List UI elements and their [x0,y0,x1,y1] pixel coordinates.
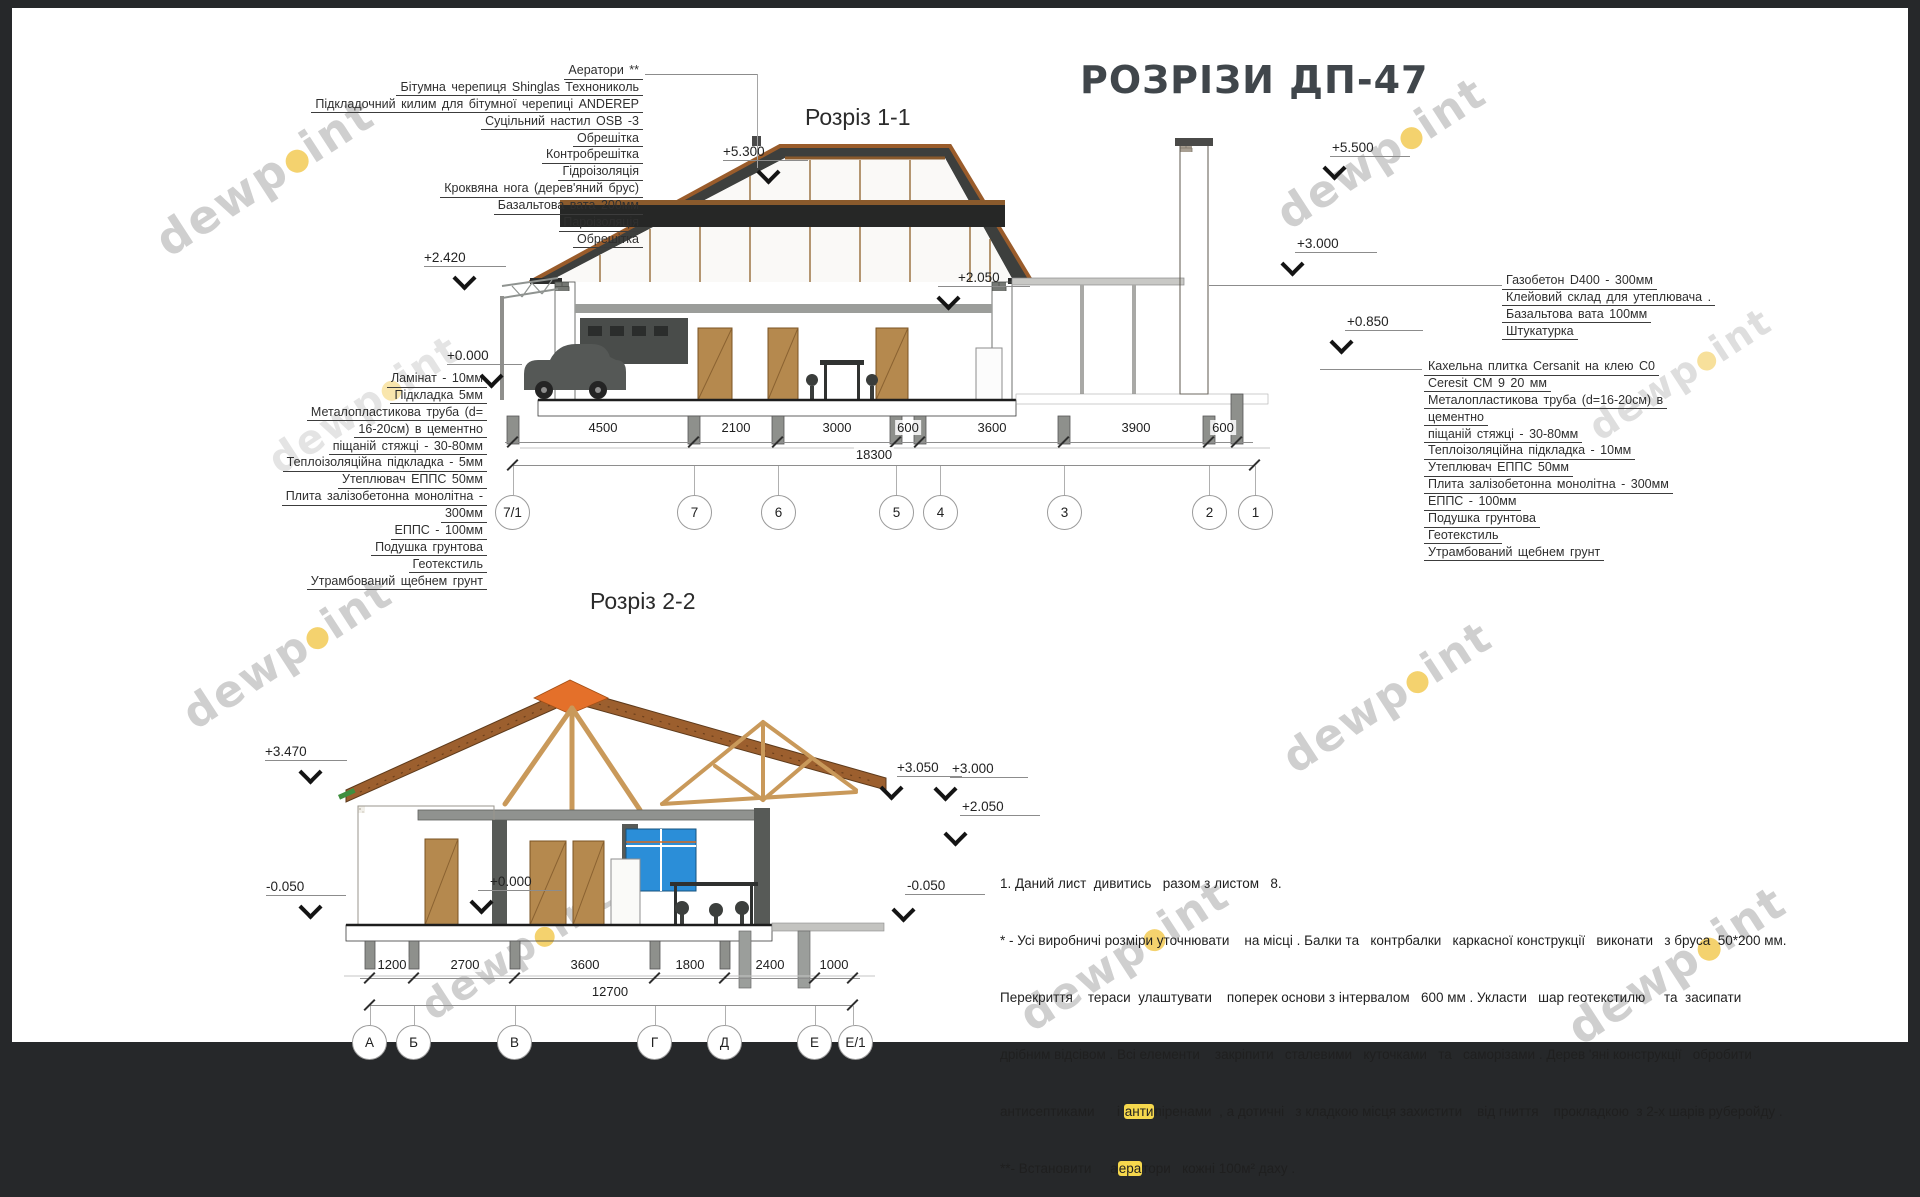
elevation-label: -0.050 [266,879,304,894]
callout-line: Плита залізобетонна монолітна - 300мм [1424,478,1673,494]
axis-leader [1209,466,1210,495]
dim-line [513,465,1255,466]
leader-line [1209,285,1502,286]
callout-line: піщаній стяжці - 30-80мм [329,440,487,456]
dim-value: 3600 [569,957,602,972]
notes-line: * - Усі виробничі розміри уточнювати на … [1000,931,1790,950]
axis-leader [370,1006,371,1025]
axis-bubble: В [497,1025,532,1060]
axis-leader [513,466,514,495]
elevation-label: +5.500 [1332,140,1374,155]
highlighted-text: ера [1118,1161,1143,1176]
axis-leader [725,1006,726,1025]
callout-line: Кахельна плитка Cersanit на клею C0 [1424,360,1659,376]
elevation-line [447,364,522,365]
floor-layer-callouts-left: Ламінат - 10мм Підкладка 5мм Металопласт… [282,372,487,592]
axis-bubble: 3 [1047,495,1082,530]
callout-line: Підкладочний килим для бітумної черепиці… [311,98,643,114]
dim-total: 12700 [590,984,630,999]
axis-bubble: 6 [761,495,796,530]
elevation-line [1295,252,1377,253]
dim-value: 2700 [449,957,482,972]
callout-line: Газобетон D400 - 300мм [1502,274,1657,290]
dim-value: 2100 [720,420,753,435]
wall-layer-callouts-right: Газобетон D400 - 300мм Клейовий склад дл… [1502,274,1715,342]
callout-line: ЕППС - 100мм [391,524,488,540]
elevation-label: +3.000 [1297,236,1339,251]
elevation-label: +0.000 [447,348,489,363]
callout-line: Геотекстиль [409,558,487,574]
dim-value: 1800 [674,957,707,972]
elevation-line [1330,156,1410,157]
notes-line: дрібним відсівом . Всі елементи закріпит… [1000,1045,1790,1064]
dim-value: 3900 [1120,420,1153,435]
axis-leader [414,1006,415,1025]
callout-line: Аератори ** [564,64,643,80]
axis-leader [655,1006,656,1025]
notes-line: антисептиками і антипіренами , а дотичні… [1000,1102,1790,1121]
callout-line: Утрамбований щебнем грунт [1424,546,1604,562]
axis-bubble: 2 [1192,495,1227,530]
callout-line: Подушка грунтова [371,541,487,557]
dim-line [370,1005,853,1006]
callout-line: Суцільний настил OSB -3 [481,115,643,131]
notes-block: 1. Даний лист дивитись разом з листом 8.… [1000,836,1790,1197]
notes-line: Перекриття тераси улаштувати поперек осн… [1000,988,1790,1007]
callout-line: Металопластикова труба (d= [307,406,487,422]
elevation-label: +3.000 [952,761,994,776]
callout-line: Базальтова вата 200мм [494,199,643,215]
callout-line: Гідроізоляція [558,165,643,181]
axis-leader [853,1006,854,1025]
callout-line: Базальтова вата 100мм [1502,308,1651,324]
callout-line: Ламінат - 10мм [387,372,487,388]
elevation-label: +2.050 [958,270,1000,285]
axis-bubble: Д [707,1025,742,1060]
callout-line: Плита залізобетонна монолітна - [282,490,487,506]
callout-line: Теплоізоляційна підкладка - 10мм [1424,444,1635,460]
leader-line [1320,369,1422,370]
dim-value: 2400 [754,957,787,972]
dim-value: 1000 [818,957,851,972]
callout-line: Контробрешітка [542,148,643,164]
axis-bubble: Е/1 [838,1025,873,1060]
elevation-label: +2.050 [962,799,1004,814]
highlighted-text: анти [1124,1104,1155,1119]
elevation-line [950,777,1028,778]
elevation-label: +0.850 [1347,314,1389,329]
dim-value: 3000 [821,420,854,435]
notes-line: **- Встановити аератори кожні 100м² даху… [1000,1159,1790,1178]
elevation-line [905,894,985,895]
callout-line: 300мм [441,507,487,523]
elevation-line [960,815,1040,816]
dim-value: 3600 [976,420,1009,435]
axis-bubble: Б [396,1025,431,1060]
axis-leader [1064,466,1065,495]
dim-value: 4500 [587,420,620,435]
elevation-label: +3.470 [265,744,307,759]
axis-leader [1255,466,1256,495]
callout-line: Геотекстиль [1424,529,1502,545]
axis-leader [815,1006,816,1025]
axis-bubble: 5 [879,495,914,530]
elevation-line [478,890,562,891]
callout-line: Підкладка 5мм [390,389,487,405]
callout-line: Ceresit CM 9 20 мм [1424,377,1551,393]
axis-leader [778,466,779,495]
callout-line: Клейовий склад для утеплювача . [1502,291,1715,307]
elevation-label: +0.000 [490,874,532,889]
callout-line: Металопластикова труба (d=16-20см) в [1424,394,1667,410]
callout-line: Пароізоляція [559,216,643,232]
callout-line: 16-20см) в цементно [354,423,487,439]
callout-line: Обрешітка [573,132,643,148]
callout-line: Подушка грунтова [1424,512,1540,528]
callout-line: цементно [1424,411,1488,427]
callout-line: Кроквяна нога (дерев'яний брус) [440,182,643,198]
callout-line: Утеплювач ЕППС 50мм [338,473,487,489]
floor-layer-callouts-right: Кахельна плитка Cersanit на клею C0 Cere… [1424,360,1673,563]
callout-line: ЕППС - 100мм [1424,495,1521,511]
elevation-line [266,895,346,896]
elevation-line [723,160,808,161]
axis-leader [940,466,941,495]
page-title: РОЗРІЗИ ДП-47 [1080,58,1428,102]
dim-line [505,442,1253,443]
dim-value: 1200 [376,957,409,972]
axis-bubble: А [352,1025,387,1060]
elevation-label: +3.050 [897,760,939,775]
axis-leader [896,466,897,495]
section1-heading: Розріз 1-1 [805,104,911,131]
axis-bubble: 4 [923,495,958,530]
axis-bubble: 7/1 [495,495,530,530]
axis-bubble: 1 [1238,495,1273,530]
elevation-line [265,760,347,761]
dim-total: 18300 [854,447,894,462]
callout-line: Штукатурка [1502,325,1578,341]
dim-line [360,978,860,979]
elevation-line [1345,330,1423,331]
elevation-label: +2.420 [424,250,466,265]
elevation-line [938,286,1030,287]
dim-value: 600 [895,420,921,435]
axis-bubble: Е [797,1025,832,1060]
callout-line: Теплоізоляційна підкладка - 5мм [283,456,487,472]
callout-line: Утеплювач ЕППС 50мм [1424,461,1573,477]
elevation-label: -0.050 [907,878,945,893]
callout-line: Бітумна черепиця Shinglas Технониколь [396,81,643,97]
dim-value: 600 [1210,420,1236,435]
notes-line: 1. Даний лист дивитись разом з листом 8. [1000,874,1790,893]
axis-bubble: 7 [677,495,712,530]
leader-line [645,74,757,75]
axis-bubble: Г [637,1025,672,1060]
axis-leader [515,1006,516,1025]
section2-heading: Розріз 2-2 [590,588,696,615]
axis-leader [694,466,695,495]
callout-line: Утрамбований щебнем грунт [307,575,487,591]
callout-line: піщаній стяжці - 30-80мм [1424,428,1582,444]
roof-layer-callouts: Аератори ** Бітумна черепиця Shinglas Те… [311,64,643,250]
elevation-label: +5.300 [723,144,765,159]
section2-drawing [330,676,890,1016]
callout-line: Обрешітка [573,233,643,249]
